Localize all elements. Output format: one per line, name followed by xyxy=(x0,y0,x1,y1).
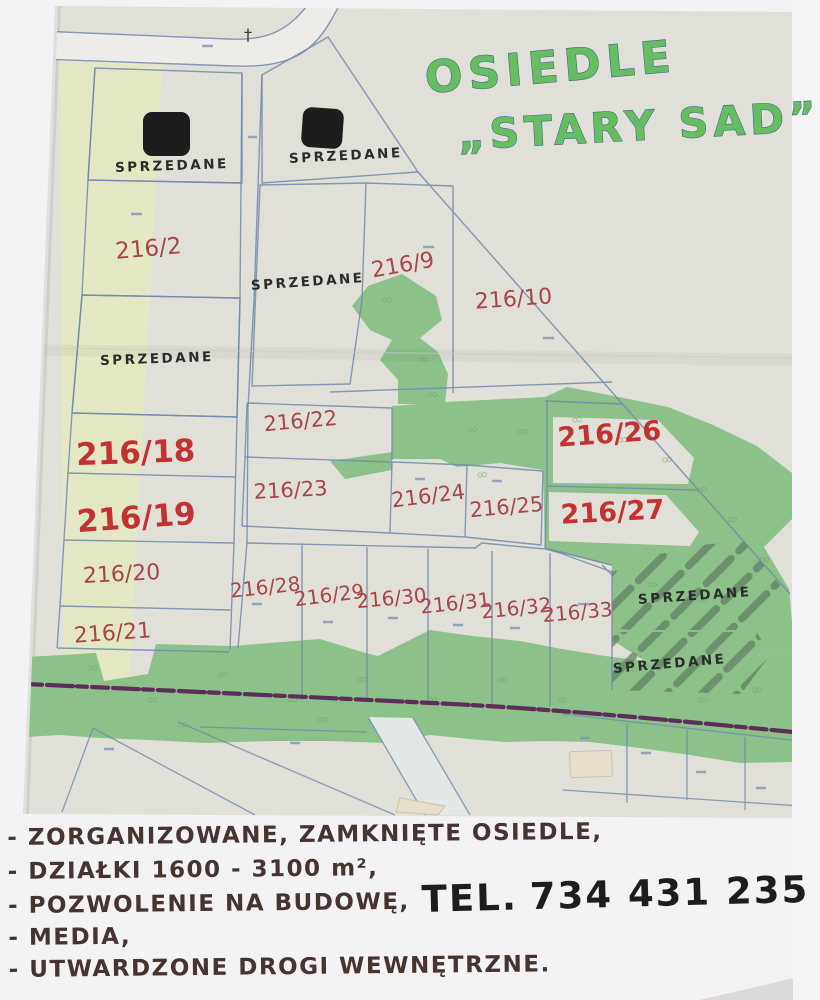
phone-digits: 734 431 235 xyxy=(529,868,809,918)
plot-label-216-20: 216/20 xyxy=(82,560,161,589)
note-bullet-2: - DZIAŁKI 1600 - 3100 m², xyxy=(8,855,379,885)
photographed-plot-map: † OSIEDLE „STARY SAD” SPRZEDANE SPRZEDAN… xyxy=(0,0,820,1000)
note-bullet-4: - MEDIA, xyxy=(8,924,131,951)
plot-label-216-23: 216/23 xyxy=(253,476,328,504)
plot-label-216-18: 216/18 xyxy=(75,433,195,473)
photo-right-edge xyxy=(793,0,820,1000)
building-footprint-1 xyxy=(570,750,613,777)
note-bullet-3: - POZWOLENIE NA BUDOWĘ, xyxy=(8,889,410,919)
black-square-marker-2 xyxy=(301,107,345,150)
black-square-marker-1 xyxy=(143,112,190,156)
phone-label: TEL. xyxy=(421,875,518,921)
cross-landmark-icon: † xyxy=(244,25,252,44)
plot-label-216-27: 216/27 xyxy=(560,494,665,530)
plot-map-svg: † OSIEDLE „STARY SAD” SPRZEDANE SPRZEDAN… xyxy=(0,0,820,1000)
